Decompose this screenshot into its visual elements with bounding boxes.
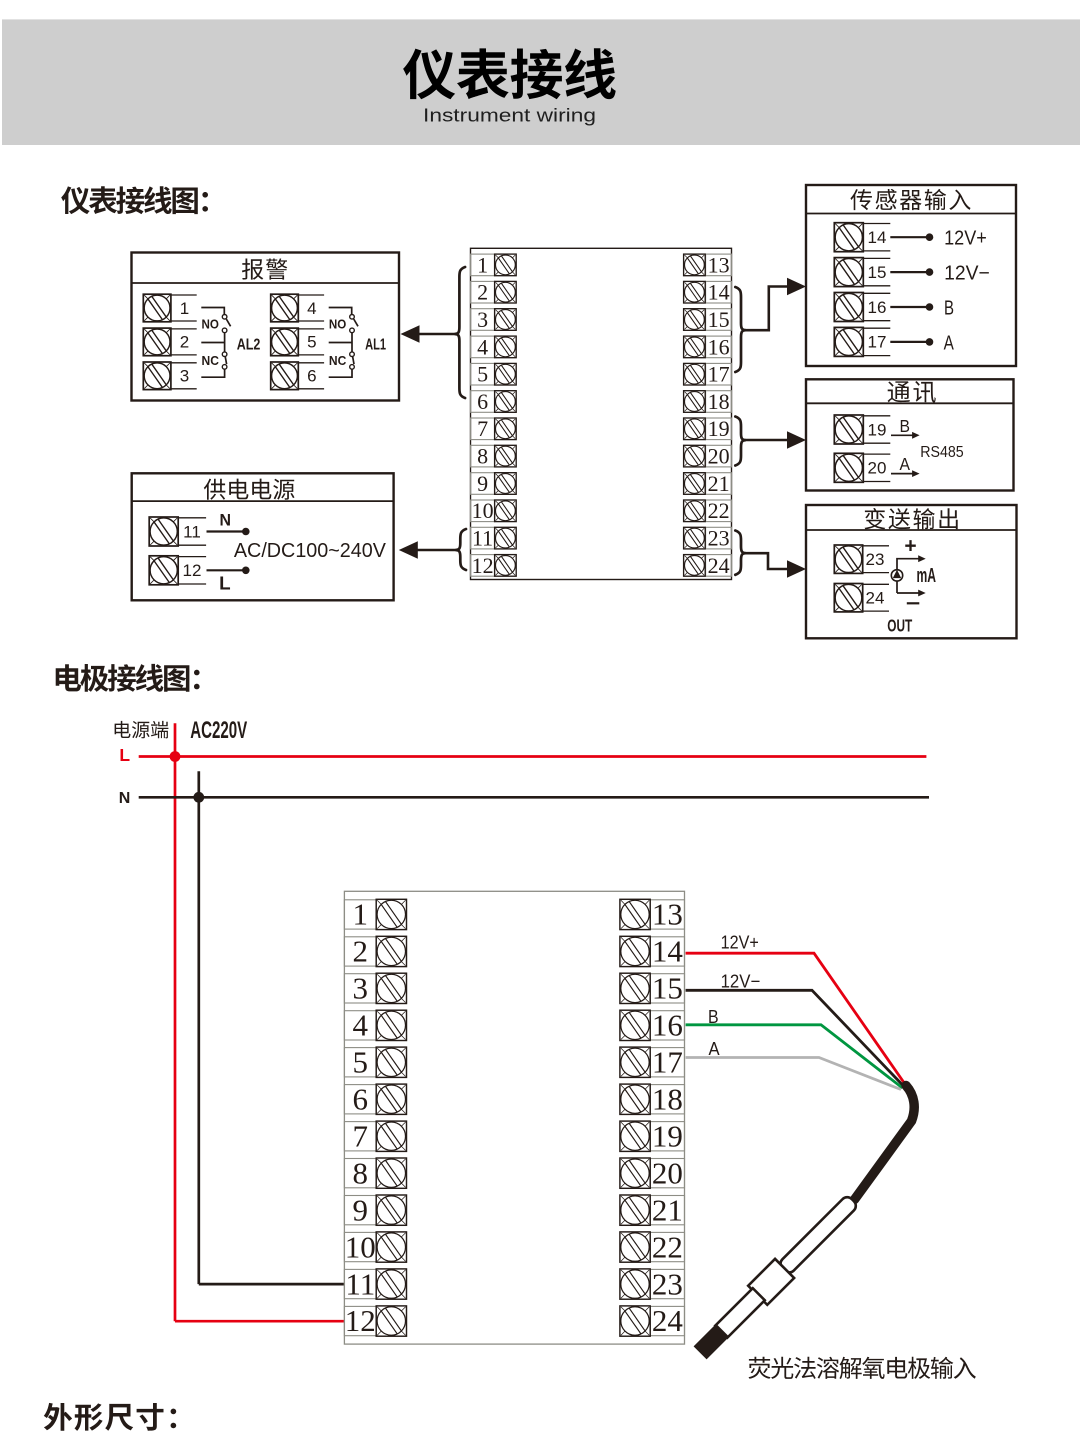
svg-text:AC220V: AC220V (190, 717, 247, 744)
svg-text:3: 3 (353, 971, 369, 1006)
svg-text:20: 20 (708, 444, 730, 469)
svg-text:20: 20 (652, 1155, 683, 1190)
svg-text:NC: NC (329, 354, 346, 368)
svg-text:13: 13 (652, 897, 683, 932)
svg-text:24: 24 (708, 553, 730, 578)
svg-text:23: 23 (708, 526, 730, 551)
svg-text:AC/DC100~240V: AC/DC100~240V (234, 540, 387, 562)
svg-text:12V+: 12V+ (944, 228, 987, 250)
svg-text:4: 4 (307, 299, 316, 318)
svg-text:21: 21 (652, 1192, 683, 1227)
svg-text:2: 2 (180, 333, 189, 352)
svg-text:8: 8 (353, 1155, 369, 1190)
svg-text:9: 9 (477, 471, 488, 496)
svg-text:12: 12 (183, 561, 202, 580)
svg-text:22: 22 (708, 498, 730, 523)
svg-text:15: 15 (652, 971, 683, 1006)
svg-text:16: 16 (652, 1008, 683, 1043)
svg-text:10: 10 (345, 1229, 376, 1264)
svg-text:AL1: AL1 (365, 336, 386, 353)
svg-text:11: 11 (183, 522, 201, 541)
svg-text:17: 17 (708, 362, 730, 387)
svg-text:23: 23 (866, 550, 885, 569)
svg-text:2: 2 (353, 934, 369, 969)
svg-text:3: 3 (477, 307, 488, 332)
svg-text:5: 5 (477, 362, 488, 387)
svg-text:23: 23 (652, 1266, 683, 1301)
svg-text:N: N (119, 790, 131, 807)
svg-text:2: 2 (477, 280, 488, 305)
svg-text:1: 1 (180, 299, 189, 318)
svg-text:3: 3 (180, 367, 189, 386)
svg-text:OUT: OUT (887, 615, 912, 635)
svg-text:NO: NO (329, 317, 347, 331)
svg-text:12: 12 (345, 1303, 376, 1338)
svg-text:18: 18 (652, 1081, 683, 1116)
svg-text:NC: NC (202, 354, 219, 368)
svg-text:1: 1 (477, 252, 488, 277)
svg-text:11: 11 (345, 1266, 375, 1301)
svg-text:+: + (904, 535, 916, 558)
svg-text:9: 9 (353, 1192, 369, 1227)
svg-text:A: A (900, 454, 911, 474)
svg-text:4: 4 (353, 1008, 369, 1043)
svg-text:N: N (220, 510, 232, 529)
svg-text:B: B (900, 416, 911, 436)
svg-text:mA: mA (917, 565, 937, 587)
svg-text:22: 22 (652, 1229, 683, 1264)
svg-text:L: L (119, 745, 130, 765)
svg-text:6: 6 (307, 367, 316, 386)
svg-text:7: 7 (477, 416, 488, 441)
svg-text:B: B (708, 1006, 719, 1027)
svg-text:14: 14 (708, 280, 730, 305)
svg-text:1: 1 (353, 897, 369, 932)
svg-text:A: A (944, 332, 955, 354)
svg-text:6: 6 (353, 1081, 369, 1116)
svg-text:16: 16 (868, 298, 887, 317)
svg-text:Instrument wiring: Instrument wiring (423, 105, 596, 126)
svg-text:19: 19 (652, 1118, 683, 1153)
svg-text:20: 20 (868, 459, 887, 478)
svg-text:21: 21 (708, 471, 730, 496)
svg-text:RS485: RS485 (920, 444, 964, 461)
svg-text:10: 10 (472, 498, 494, 523)
svg-text:5: 5 (307, 333, 316, 352)
svg-text:15: 15 (708, 307, 730, 332)
svg-text:4: 4 (477, 334, 488, 359)
svg-text:19: 19 (708, 416, 730, 441)
svg-text:12V−: 12V− (721, 970, 761, 991)
svg-text:17: 17 (652, 1044, 683, 1079)
svg-text:AL2: AL2 (237, 336, 261, 353)
svg-text:14: 14 (652, 934, 684, 969)
svg-text:6: 6 (477, 389, 488, 414)
svg-text:NO: NO (202, 317, 220, 331)
svg-text:8: 8 (477, 444, 488, 469)
svg-text:7: 7 (353, 1118, 369, 1153)
svg-text:11: 11 (472, 526, 493, 551)
svg-text:17: 17 (868, 333, 887, 352)
svg-text:15: 15 (868, 263, 887, 282)
svg-text:L: L (219, 572, 231, 593)
svg-text:12: 12 (472, 553, 494, 578)
svg-text:18: 18 (708, 389, 730, 414)
svg-text:5: 5 (353, 1044, 369, 1079)
svg-text:16: 16 (708, 334, 730, 359)
svg-text:A: A (709, 1038, 721, 1059)
svg-text:24: 24 (652, 1303, 684, 1338)
svg-text:24: 24 (866, 589, 885, 608)
svg-text:12V+: 12V+ (721, 932, 759, 953)
svg-text:13: 13 (708, 252, 730, 277)
svg-text:14: 14 (868, 228, 887, 247)
svg-text:19: 19 (868, 420, 887, 439)
svg-text:12V−: 12V− (944, 263, 990, 285)
svg-text:B: B (944, 298, 954, 320)
